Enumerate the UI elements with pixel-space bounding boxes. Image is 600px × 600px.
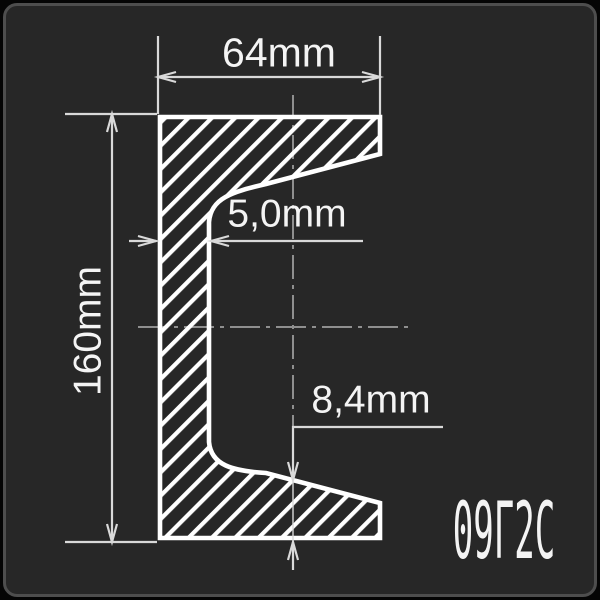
steel-grade-label: 09Г2С: [453, 492, 555, 570]
flange-thickness-label: 8,4mm: [311, 381, 430, 420]
height-dimension-label: 160mm: [69, 266, 108, 396]
leader-line: [293, 427, 443, 480]
width-dimension-label: 64mm: [222, 33, 336, 74]
web-thickness-label: 5,0mm: [227, 195, 346, 234]
